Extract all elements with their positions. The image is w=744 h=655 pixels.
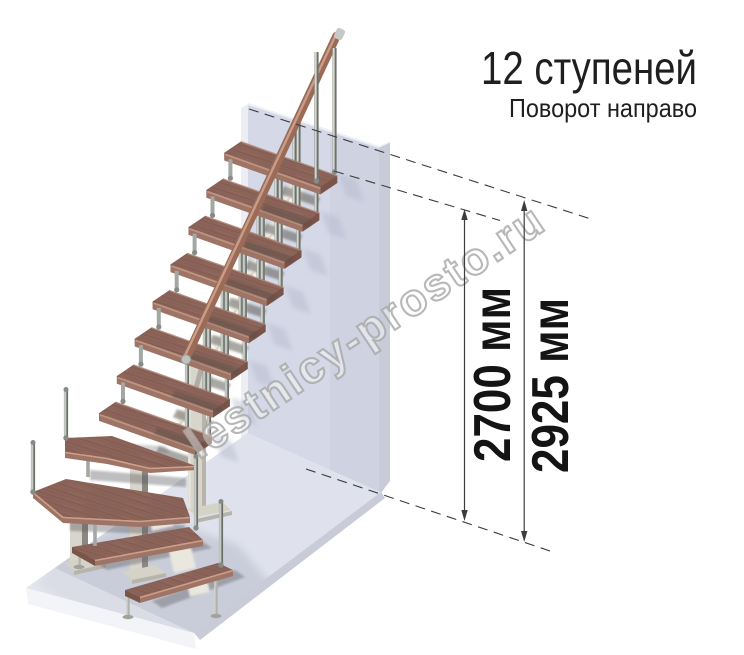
svg-text:Поворот направо: Поворот направо (509, 93, 697, 123)
svg-text:2925 мм: 2925 мм (522, 298, 580, 473)
svg-text:2700 мм: 2700 мм (464, 287, 522, 462)
svg-text:12 ступеней: 12 ступеней (481, 42, 697, 94)
